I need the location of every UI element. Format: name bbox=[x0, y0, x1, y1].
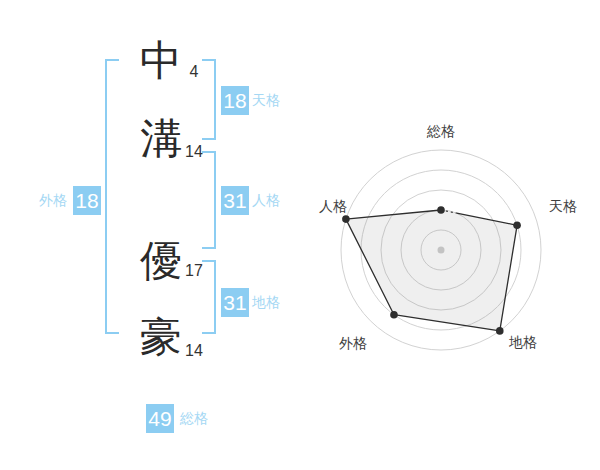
bracket-gaikaku bbox=[105, 59, 119, 334]
jinkaku-label: 人格 bbox=[252, 193, 280, 207]
gaikaku-label: 外格 bbox=[37, 193, 67, 207]
tenkaku-label: 天格 bbox=[252, 93, 280, 107]
axis-label: 天格 bbox=[549, 198, 577, 214]
axis-label: 人格 bbox=[319, 198, 347, 214]
name-char-1: 中 bbox=[138, 40, 184, 82]
data-point bbox=[437, 206, 445, 214]
data-point bbox=[496, 327, 504, 335]
name-char-3: 優 bbox=[138, 240, 184, 282]
bracket-jinkaku bbox=[202, 151, 216, 249]
jinkaku-badge: 31 bbox=[221, 186, 249, 215]
chikaku-badge: 31 bbox=[221, 288, 249, 317]
data-point bbox=[342, 215, 350, 223]
stroke-count-4: 14 bbox=[181, 343, 207, 359]
soukaku-badge: 49 bbox=[146, 404, 174, 433]
bracket-chikaku bbox=[202, 260, 216, 334]
axis-label: 総格 bbox=[426, 123, 455, 139]
name-char-2: 溝 bbox=[138, 118, 184, 160]
tenkaku-badge: 18 bbox=[221, 86, 249, 115]
radar-chart-svg: 総格天格地格外格人格 bbox=[300, 100, 600, 370]
axis-label: 外格 bbox=[339, 335, 367, 351]
name-analysis-panel: 中 溝 優 豪 4 14 17 14 18 天格 31 人格 31 地格 外格 … bbox=[0, 0, 600, 470]
name-char-4: 豪 bbox=[138, 316, 184, 358]
gaikaku-badge: 18 bbox=[73, 186, 101, 215]
center-dot bbox=[438, 247, 445, 254]
chikaku-label: 地格 bbox=[252, 295, 280, 309]
bracket-tenkaku bbox=[202, 59, 216, 140]
data-point bbox=[513, 221, 521, 229]
axis-label: 地格 bbox=[508, 334, 537, 350]
soukaku-label: 総格 bbox=[180, 411, 208, 425]
data-point bbox=[390, 311, 398, 319]
